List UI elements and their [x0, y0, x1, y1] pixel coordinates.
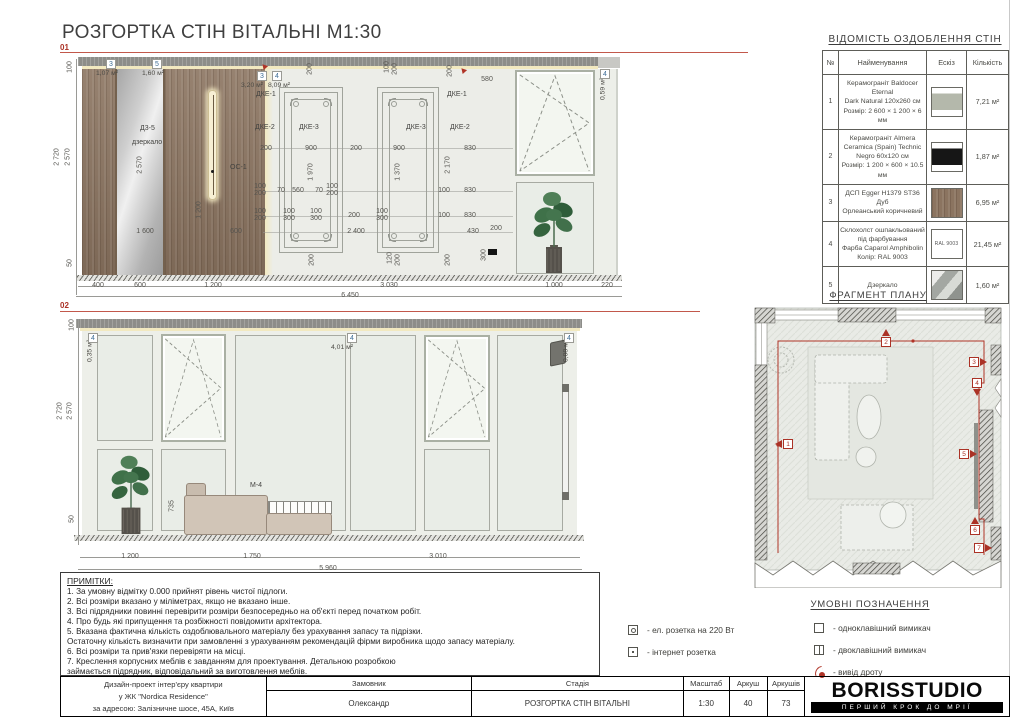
client-cell: Замовник Олександр — [267, 677, 473, 716]
callout-label: дзеркало — [132, 139, 162, 146]
dim-label: 50 — [69, 515, 76, 523]
dim-label: 200 — [445, 254, 452, 266]
finish-name-line: Дзеркало — [840, 281, 925, 290]
view-marker-number: 5 — [962, 451, 966, 458]
note-line: Остаточну кількість визначити при замовл… — [67, 637, 593, 647]
swatch-tile-black — [931, 142, 963, 172]
material-area: 0,08 м² — [563, 340, 570, 362]
finish-schedule-table: № Найменування Ескіз Кількість 1Керамогр… — [822, 50, 1009, 304]
finish-row: 1Керамограніт Baldocer EternalDark Natur… — [823, 75, 1009, 130]
light-point — [211, 170, 214, 173]
finish-row-sketch — [927, 75, 967, 130]
dim-label: 200 — [254, 215, 266, 222]
callout-label: М-4 — [250, 482, 262, 489]
project-info-cell: Дизайн-проект інтер'єру квартири у ЖК "N… — [61, 677, 267, 716]
callout-label: Д3-5 — [140, 125, 155, 132]
dim-label: 120 — [387, 252, 394, 264]
callout-label: ДКЕ-3 — [406, 124, 426, 131]
dim-label: 200 — [309, 254, 316, 266]
dim-label: 1 200 — [204, 282, 222, 289]
finish-name-line: Склохолст ошпакльований — [840, 226, 925, 235]
scale-value: 1:30 — [684, 691, 729, 716]
view-marker-arrow-up — [882, 325, 890, 336]
notes-block: ПРИМІТКИ: 1. За умовну відмітку 0.000 пр… — [60, 572, 600, 676]
dim-label: 100 — [326, 183, 338, 190]
material-tag-3: 3 — [257, 71, 267, 81]
callout-label: ДКЕ-3 — [299, 124, 319, 131]
dim-label: 3 010 — [429, 553, 447, 560]
plan-view-markers: 1234567 — [753, 305, 1003, 588]
finish-name-line: Керамограніт Baldocer Eternal — [840, 79, 925, 97]
finish-name-line: ДСП Egger H1379 ST36 Дуб — [840, 189, 925, 207]
finish-row-quantity: 7,21 м² — [967, 75, 1009, 130]
finish-row-number: 2 — [823, 129, 839, 184]
finish-row-name: Керамограніт AlmeraCeramica (Spain) Tech… — [839, 129, 927, 184]
sheets-total-cell: Аркушів 73 — [768, 677, 806, 716]
swatch-tile-gray — [931, 87, 963, 117]
dim-label: 2 570 — [67, 402, 74, 420]
dim-label: 100 — [254, 208, 266, 215]
finish-row-sketch — [927, 184, 967, 221]
legend-item-label: - двоклавішний вимикач — [833, 645, 926, 655]
dim-label: 200 — [260, 145, 272, 152]
dim-label: 1 970 — [308, 163, 315, 181]
finish-name-line: Розмір: 2 600 × 1 200 × 6 мм — [840, 107, 925, 125]
sheets-total-value: 73 — [768, 691, 805, 716]
finish-row: 3ДСП Egger H1379 ST36 ДубОрлеанський кор… — [823, 184, 1009, 221]
switch1-icon — [814, 623, 824, 633]
view-marker-4: 4 — [972, 378, 982, 388]
callout-label: ДКЕ-1 — [256, 91, 276, 98]
dim-label: 200 — [307, 63, 314, 75]
logo-name: BORISSTUDIO — [832, 681, 983, 701]
finish-name-line: під фарбування — [840, 235, 925, 244]
note-line: 1. За умовну відмітку 0.000 прийнят ріве… — [67, 587, 593, 597]
finish-name-line: Керамограніт Almera — [840, 134, 925, 143]
plan-title: ФРАГМЕНТ ПЛАНУ — [753, 290, 1003, 301]
finish-row: 2Керамограніт AlmeraCeramica (Spain) Tec… — [823, 129, 1009, 184]
view-marker-5: 5 — [959, 449, 969, 459]
view-marker-7: 7 — [974, 543, 984, 553]
dim-label: 200 — [254, 190, 266, 197]
finish-row-number: 3 — [823, 184, 839, 221]
finish-name-line: Ceramica (Spain) Technic — [840, 143, 925, 152]
dim-label: 580 — [481, 76, 493, 83]
dim-label: 300 — [310, 215, 322, 222]
dim-label: 3 030 — [380, 282, 398, 289]
view-marker-number: 6 — [973, 527, 977, 534]
dim-label: 1 000 — [545, 282, 563, 289]
view-marker-6: 6 — [970, 525, 980, 535]
dim-label: 100 — [67, 61, 74, 73]
dim-label: 430 — [467, 228, 479, 235]
material-tag-4: 4 — [88, 333, 98, 343]
dim-label: 2 400 — [347, 228, 365, 235]
dim-label: 220 — [601, 282, 613, 289]
dim-label: 1 200 — [121, 553, 139, 560]
material-tag-4: 4 — [347, 333, 357, 343]
view-marker-arrow-up — [971, 513, 979, 524]
finish-row-sketch — [927, 129, 967, 184]
internet-icon — [628, 647, 638, 657]
dim-label: 1 370 — [395, 163, 402, 181]
view-marker-number: 7 — [977, 545, 981, 552]
dim-label: 100 — [438, 212, 450, 219]
dim-label: 100 — [438, 187, 450, 194]
dim-label: 600 — [230, 228, 242, 235]
legend-item: - ел. розетка на 220 Вт — [628, 624, 734, 636]
elevation-01: 01 1002 7202 570502 — [60, 45, 760, 305]
view-marker-arrow-right — [980, 358, 991, 366]
material-tag-4: 4 — [564, 333, 574, 343]
dim-label: 100 — [69, 319, 76, 331]
stage-header: Стадія — [472, 677, 683, 691]
project-line: Дизайн-проект інтер'єру квартири — [61, 679, 266, 690]
page-title: РОЗГОРТКА СТІН ВІТАЛЬНІ М1:30 — [62, 22, 382, 44]
dim-label: 1 750 — [243, 553, 261, 560]
note-line: 4. Про будь які припущення та розбіжност… — [67, 617, 593, 627]
dim-label: 830 — [464, 187, 476, 194]
view-marker-1: 1 — [783, 439, 793, 449]
note-line: 3. Всі підрядники повинні перевірити роз… — [67, 607, 593, 617]
callout-label: ДКЕ-2 — [255, 124, 275, 131]
swatch-ral: RAL 9003 — [931, 229, 963, 259]
stage-cell: Стадія РОЗГОРТКА СТІН ВІТАЛЬНІ — [472, 677, 684, 716]
material-area: 3,20 м² — [241, 82, 263, 89]
note-line: 6. Всі розміри та прив'язки перевіряти н… — [67, 647, 593, 657]
finish-row-quantity: 21,45 м² — [967, 221, 1009, 267]
legend-column-left: - ел. розетка на 220 Вт- інтернет розетк… — [628, 624, 734, 668]
finish-name-line: Negro 60x120 см — [840, 152, 925, 161]
scale-cell: Масштаб 1:30 — [684, 677, 730, 716]
dim-label: 900 — [393, 145, 405, 152]
client-header: Замовник — [267, 677, 472, 691]
dim-label: 100 — [283, 208, 295, 215]
sheet-border — [1009, 0, 1010, 676]
note-line: 2. Всі розміри вказано у міліметрах, якщ… — [67, 597, 593, 607]
material-area: 4,01 м² — [331, 344, 353, 351]
project-line: за адресою: Залізничне шосе, 45А, Київ — [61, 703, 266, 714]
finish-row-name: Склохолст ошпакльованийпід фарбуванняФар… — [839, 221, 927, 267]
socket220-icon — [628, 625, 638, 635]
finish-row-name: ДСП Egger H1379 ST36 ДубОрлеанський кори… — [839, 184, 927, 221]
dim-label: 300 — [376, 215, 388, 222]
finish-row-quantity: 1,87 м² — [967, 129, 1009, 184]
material-tag-5: 5 — [152, 59, 162, 69]
sheet-number-header: Аркуш — [730, 677, 767, 691]
dim-label: 100 — [384, 61, 391, 73]
dim-label: 2 570 — [137, 156, 144, 174]
col-header-name: Найменування — [839, 51, 927, 75]
material-area: 8,09 м² — [268, 82, 290, 89]
plan-fragment: 1234567 — [753, 305, 1003, 588]
material-area: 0,59 м² — [600, 78, 607, 100]
legend-item-label: - одноклавішний вимикач — [833, 623, 931, 633]
view-marker-3: 3 — [969, 357, 979, 367]
material-tag-4: 4 — [272, 71, 282, 81]
title-block: Дизайн-проект інтер'єру квартири у ЖК "N… — [60, 676, 1010, 717]
col-header-qty: Кількість — [967, 51, 1009, 75]
annotation-layer: 1002 7202 570502 5701 2004006001 2003 03… — [60, 45, 760, 305]
finish-row-number: 4 — [823, 221, 839, 267]
view-marker-arrow-down — [973, 389, 981, 400]
col-header-no: № — [823, 51, 839, 75]
legend-item: - інтернет розетка — [628, 646, 734, 658]
legend-title: УМОВНІ ПОЗНАЧЕННЯ — [740, 599, 1000, 610]
dim-label: 400 — [92, 282, 104, 289]
dim-label: 2 170 — [445, 156, 452, 174]
material-tag-3: 3 — [106, 59, 116, 69]
legend-item-label: - ел. розетка на 220 Вт — [647, 625, 734, 635]
legend-item: - двоклавішний вимикач — [814, 644, 931, 656]
view-marker-number: 3 — [972, 359, 976, 366]
studio-logo: BORISSTUDIO ПЕРШИЙ КРОК ДО МРІЇ — [805, 677, 1009, 716]
callout-label: ОС-1 — [230, 164, 247, 171]
view-marker-number: 4 — [975, 380, 979, 387]
dim-label: 2 720 — [57, 402, 64, 420]
switch2-icon — [814, 645, 824, 655]
dim-label: 1 200 — [196, 201, 203, 219]
notes-lines: 1. За умовну відмітку 0.000 прийнят ріве… — [67, 587, 593, 677]
finish-schedule: ВІДОМІСТЬ ОЗДОБЛЕННЯ СТІН № Найменування… — [822, 34, 1008, 304]
dim-label: 100 — [254, 183, 266, 190]
scale-header: Масштаб — [684, 677, 729, 691]
dim-label: 200 — [447, 65, 454, 77]
legend-item-label: - інтернет розетка — [647, 647, 716, 657]
dim-label: 200 — [395, 254, 402, 266]
dim-label: 2 570 — [65, 148, 72, 166]
finish-name-line: Розмір: 1 200 × 600 × 10.5 мм — [840, 161, 925, 179]
finish-name-line: Колір: RAL 9003 — [840, 253, 925, 262]
note-line: 5. Вказана фактична кількість оздоблювал… — [67, 627, 593, 637]
dim-label: 560 — [292, 187, 304, 194]
legend-item: - одноклавішний вимикач — [814, 622, 931, 634]
view-marker-arrow-left — [771, 440, 782, 448]
project-line: у ЖК "Nordica Residence" — [61, 691, 266, 702]
view-marker-number: 1 — [786, 441, 790, 448]
finish-name-line: Орлеанський коричневий — [840, 207, 925, 216]
sheet-number-value: 40 — [730, 691, 767, 716]
dim-label: 100 — [310, 208, 322, 215]
col-header-sketch: Ескіз — [927, 51, 967, 75]
dim-label: 200 — [392, 63, 399, 75]
annotation-layer: 1002 7202 570501 2001 7503 0105 96073540… — [60, 303, 720, 578]
notes-title: ПРИМІТКИ: — [67, 576, 593, 586]
note-line: 7. Креслення корпусних меблів є завдання… — [67, 657, 593, 667]
dim-label: 6 450 — [341, 292, 359, 299]
dim-label: 900 — [305, 145, 317, 152]
dim-label: 50 — [67, 259, 74, 267]
view-marker-number: 2 — [884, 339, 888, 346]
dim-label: 200 — [350, 145, 362, 152]
view-marker-arrow-right — [970, 450, 981, 458]
swatch-wood — [931, 188, 963, 218]
dim-label: 200 — [348, 212, 360, 219]
swatch-text: RAL 9003 — [935, 241, 959, 247]
dim-label: 200 — [490, 225, 502, 232]
stage-value: РОЗГОРТКА СТІН ВІТАЛЬНІ — [472, 691, 683, 716]
sheets-total-header: Аркушів — [768, 677, 805, 691]
view-marker-2: 2 — [881, 337, 891, 347]
logo-tagline: ПЕРШИЙ КРОК ДО МРІЇ — [811, 702, 1003, 713]
material-area: 1,07 м² — [96, 70, 118, 77]
finish-row: 4Склохолст ошпакльованийпід фарбуванняФа… — [823, 221, 1009, 267]
finish-row-name: Керамограніт Baldocer EternalDark Natura… — [839, 75, 927, 130]
client-value: Олександр — [267, 691, 472, 716]
dim-label: 300 — [283, 215, 295, 222]
finish-row-quantity: 6,95 м² — [967, 184, 1009, 221]
dim-label: 1 600 — [136, 228, 154, 235]
dim-label: 70 — [277, 187, 285, 194]
callout-label: ДКЕ-2 — [450, 124, 470, 131]
material-area: 1,60 м² — [142, 70, 164, 77]
dim-label: 2 720 — [54, 148, 61, 166]
dim-label: 200 — [326, 190, 338, 197]
finish-name-line: Фарба Caparol Amphibolin — [840, 244, 925, 253]
elevation-02: 02 1002 7202 570501 — [60, 303, 720, 578]
dim-label: 600 — [134, 282, 146, 289]
dim-label: 100 — [376, 208, 388, 215]
material-tag-4: 4 — [600, 69, 610, 79]
dim-label: 5 960 — [319, 565, 337, 572]
view-marker-arrow-right — [985, 544, 996, 552]
finish-row-number: 1 — [823, 75, 839, 130]
dim-label: 300 — [481, 249, 488, 261]
finish-name-line: Dark Natural 120x260 см — [840, 97, 925, 106]
dim-label: 830 — [464, 145, 476, 152]
dim-label: 70 — [315, 187, 323, 194]
finish-row-sketch: RAL 9003 — [927, 221, 967, 267]
material-area: 0,35 м² — [87, 340, 94, 362]
dim-label: 830 — [464, 212, 476, 219]
callout-label: ДКЕ-1 — [447, 91, 467, 98]
dim-label: 735 — [169, 500, 176, 512]
finish-schedule-title: ВІДОМІСТЬ ОЗДОБЛЕННЯ СТІН — [822, 34, 1008, 45]
sheet-number-cell: Аркуш 40 — [730, 677, 768, 716]
